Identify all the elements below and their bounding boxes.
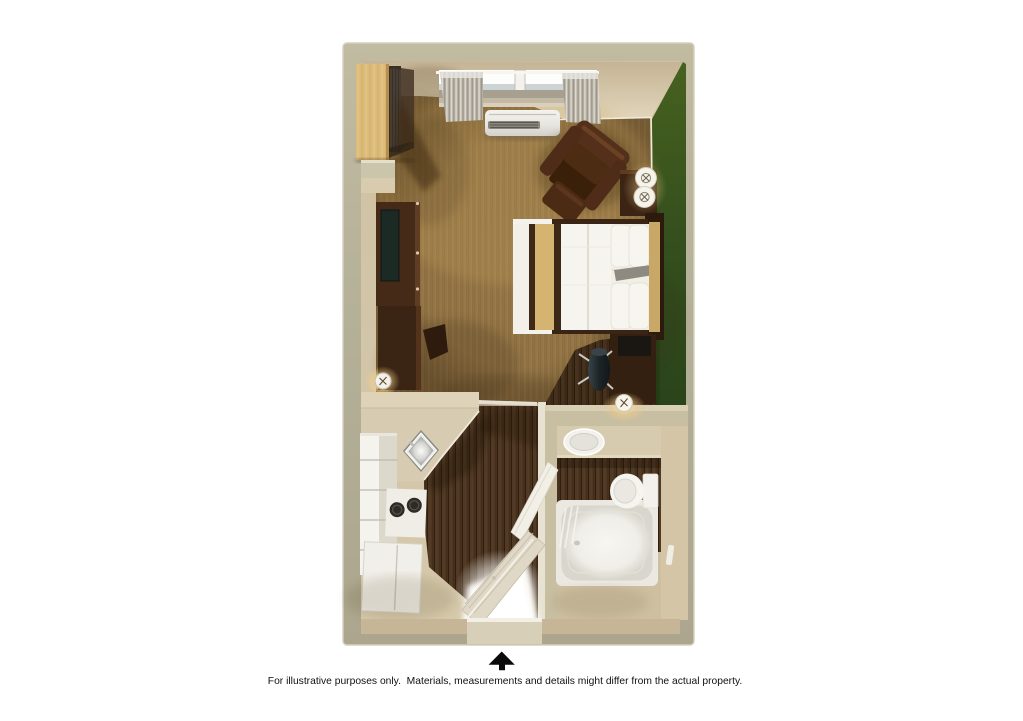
svg-text:For illustrative purposes only: For illustrative purposes only. Material… <box>268 676 742 687</box>
